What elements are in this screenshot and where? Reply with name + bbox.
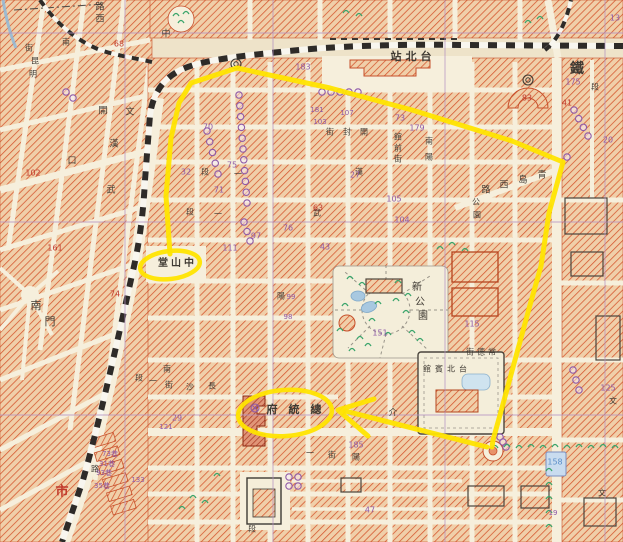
map-label: 125 [600,384,615,393]
map-label: 賓 [435,364,443,374]
map-label: 西 [499,180,508,191]
map-label: 介 [388,408,397,419]
bus-stop-icon [286,483,292,489]
bus-stop-icon [215,171,221,177]
map-label: 北 [447,365,455,374]
map-label: 台 [421,49,432,63]
map-label: 一 [214,210,222,219]
map-label: 新 [412,280,422,293]
map-label: 文 [598,488,606,498]
map-label: 70 [203,123,213,132]
bus-stop-icon [237,113,243,119]
map-label: 站 [391,49,402,63]
map-label: 27 [350,171,360,180]
map-label: 41 [562,99,572,108]
map-label: 一 [306,449,314,458]
map-label: 133 [131,476,144,484]
bus-stop-icon [209,149,215,155]
bus-stop-icon [585,133,591,139]
bus-stop-icon [576,387,582,393]
map-label: 園 [473,211,481,220]
map-label: 門 [45,315,56,328]
map-label: 路 [95,1,104,13]
map-label: 山 [171,256,181,269]
map-label: 中 [161,28,170,40]
map-label: 31巷 [99,460,115,468]
map-label: 文 [609,396,617,406]
map-label: 武 [106,184,115,196]
map-label: 179 [409,124,424,133]
bus-stop-icon [295,483,301,489]
map-label: 103 [313,118,326,126]
map-label: 75 [227,161,237,170]
bus-stop-icon [244,228,250,234]
map-label: 常 [488,348,496,357]
map-label: 西 [95,14,104,25]
map-label: 館 [423,364,431,374]
bus-stop-icon [63,89,69,95]
bus-stop-icon [243,189,249,195]
bus-stop-icon [240,146,246,152]
map-label: 昆 [31,57,39,66]
bus-stop-icon [239,135,245,141]
map-label: 63 [313,204,323,213]
map-label: 陽 [425,153,433,162]
bus-stop-icon [564,154,570,160]
temple-building [247,478,281,524]
bus-stop-icon [295,474,301,480]
map-label: 111 [222,244,237,253]
map-label: 路 [481,184,490,196]
map-label: 183 [295,63,310,72]
map-label: 175 [565,78,580,87]
bus-stop-icon [212,160,218,166]
map-label: 76 [283,224,293,233]
map-label: 街 [326,127,334,137]
map-label: 前 [394,143,402,153]
map-label: 公 [472,198,480,207]
map-label: 185 [348,441,363,450]
guesthouse-building [436,390,478,412]
map-label: 35巷 [94,482,110,490]
map-label: 開 [98,106,107,117]
map-label: 街 [328,450,336,460]
traffic-circle [168,6,194,32]
map-label: 115 [464,320,479,329]
bus-stop-icon [580,124,586,130]
map-label: 總 [311,402,322,416]
map-label: 口 [67,157,76,167]
bus-stop-icon [236,92,242,98]
bus-stop-icon [319,89,325,95]
map-label: 街 [394,154,402,164]
city-blocks-east [560,58,623,542]
map-label: 台 [459,364,467,374]
map-label: 98 [284,313,293,321]
map-label: 明 [29,70,37,79]
map-label: 統 [289,402,300,416]
map-label: 一 [149,377,157,386]
bus-stop-icon [70,95,76,101]
map-label: 段 [135,373,143,383]
map-label: 段 [201,167,209,177]
map-label: 73巷 [102,450,118,458]
map-label: 73 [395,114,405,123]
map-label: 公 [415,297,425,308]
map-label: 德 [477,347,485,357]
map-label: 南 [163,364,171,374]
map-label: 161 [47,244,62,253]
map-label: 158 [547,458,562,467]
park-pond [351,291,365,301]
guesthouse-pond [462,374,490,390]
map-label: 74 [110,290,120,299]
map-label: 19 [549,509,558,517]
map-label: 市 [55,484,68,500]
bus-stop-icon [575,115,581,121]
map-label: 83 [522,94,532,103]
map-label: 99 [287,293,296,301]
map-label: 堂 [158,256,168,269]
map-label: 段 [186,207,194,217]
map-label: 街 [25,43,33,53]
map-label: 開 [360,128,368,137]
bus-stop-icon [238,124,244,130]
bus-stop-icon [241,167,247,173]
map-label: 陽 [277,292,285,301]
map-label: 沙 [186,383,194,392]
map-label: 街 [466,347,474,357]
map-label: 13 [610,14,620,23]
bus-stop-icon [571,107,577,113]
map-label: 151 [372,329,387,338]
map-label: 北 [406,49,417,63]
map-label: 一 [234,170,242,179]
map-label: 漢 [109,138,118,150]
map-label: 105 [386,195,401,204]
map-label: 府 [267,402,278,416]
map-label: 南 [31,299,42,312]
map-label: 鐵 [570,60,584,77]
bus-stop-icon [244,200,250,206]
map-label: 32 [181,168,191,177]
map-label: 93巷 [96,469,112,477]
map-label: 121 [159,423,172,431]
map-label: 20 [603,136,613,145]
map-label: 107 [340,109,353,117]
map-label: 島 [518,174,527,186]
map-label: 南 [62,37,70,47]
map-label: 中 [184,256,194,269]
map-label: 97 [251,232,261,241]
map-label: 園 [418,310,428,322]
new-park [333,266,448,358]
map-label: 館 [394,132,402,142]
bus-stop-icon [286,474,292,480]
bus-stop-icon [241,219,247,225]
map-label: 段 [248,524,256,534]
bus-stop-icon [570,367,576,373]
map-label: 文 [125,106,134,118]
map-label: 181 [310,106,323,114]
map-label: 長 [208,382,216,391]
map-label: 47 [365,506,375,515]
map-label: 南 [425,136,433,146]
taipei-map-canvas: 路西中街南昆明開文漢口武站北台鐵段街封開館前街南陽漢武路西島青公園新公園館賓北台… [0,0,623,542]
map-label: 68 [114,40,124,49]
map-label: 青 [537,169,546,181]
bus-stop-icon [207,139,213,145]
map-label: 陽 [352,453,360,462]
map-label: 段 [591,82,599,92]
map-label: 104 [394,216,409,225]
bus-stop-icon [242,178,248,184]
bus-stop-icon [241,157,247,163]
map-label: 街 [165,380,173,390]
map-label: 29 [172,414,182,423]
bus-stop-icon [237,103,243,109]
map-label: 71 [214,186,224,195]
bus-stop-icon [573,377,579,383]
map-label: 封 [343,127,351,137]
map-label: 43 [320,243,330,252]
taipei-historic-map: 路西中街南昆明開文漢口武站北台鐵段街封開館前街南陽漢武路西島青公園新公園館賓北台… [0,0,623,542]
map-label: 102 [25,169,40,178]
